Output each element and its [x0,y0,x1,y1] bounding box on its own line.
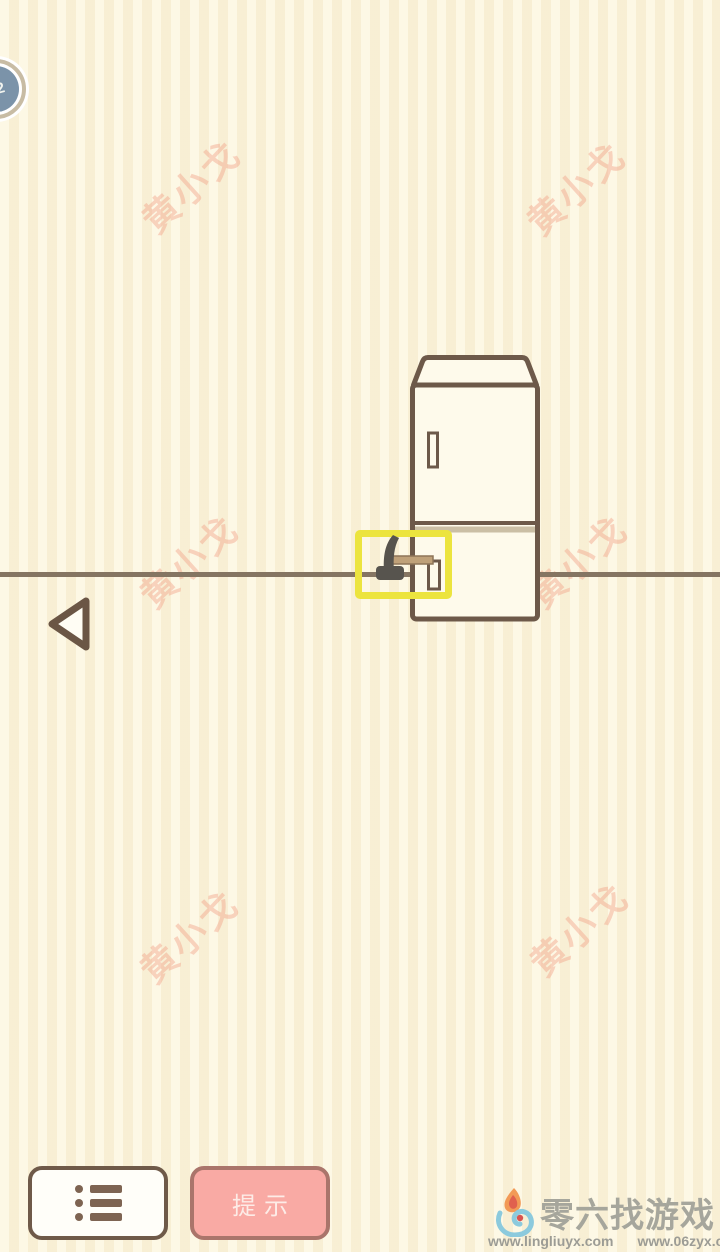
list-icon [75,1185,122,1221]
fridge-lid [414,358,537,386]
site-name: 零六找游戏 [540,1188,716,1237]
site-urls: www.lingliuyx.com www.06zyx.com [488,1233,718,1249]
level-number: 22 [0,79,6,100]
site-url: www.06zyx.com [638,1233,720,1249]
watermark: 黄小戈 [127,502,249,619]
hammer-icon [368,532,438,584]
watermark: 黄小戈 [517,870,639,987]
hammer[interactable] [368,532,438,584]
hammer-handle [392,556,433,564]
back-button[interactable] [42,594,94,654]
site-logo-icon [490,1187,538,1237]
watermark: 黄小戈 [129,127,251,244]
menu-button[interactable] [28,1166,168,1240]
level-badge: 22 [0,56,29,122]
hammer-head [376,566,404,580]
back-arrow-icon [42,594,94,654]
fridge-upper-handle[interactable] [429,433,438,467]
game-screen: 黄小戈 黄小戈 黄小戈 黄小戈 黄小戈 黄小戈 22 [0,0,720,1252]
site-url: www.lingliuyx.com [488,1233,614,1249]
hint-button[interactable]: 提示 [190,1166,330,1240]
watermark: 黄小戈 [514,129,636,246]
watermark: 黄小戈 [127,877,249,994]
